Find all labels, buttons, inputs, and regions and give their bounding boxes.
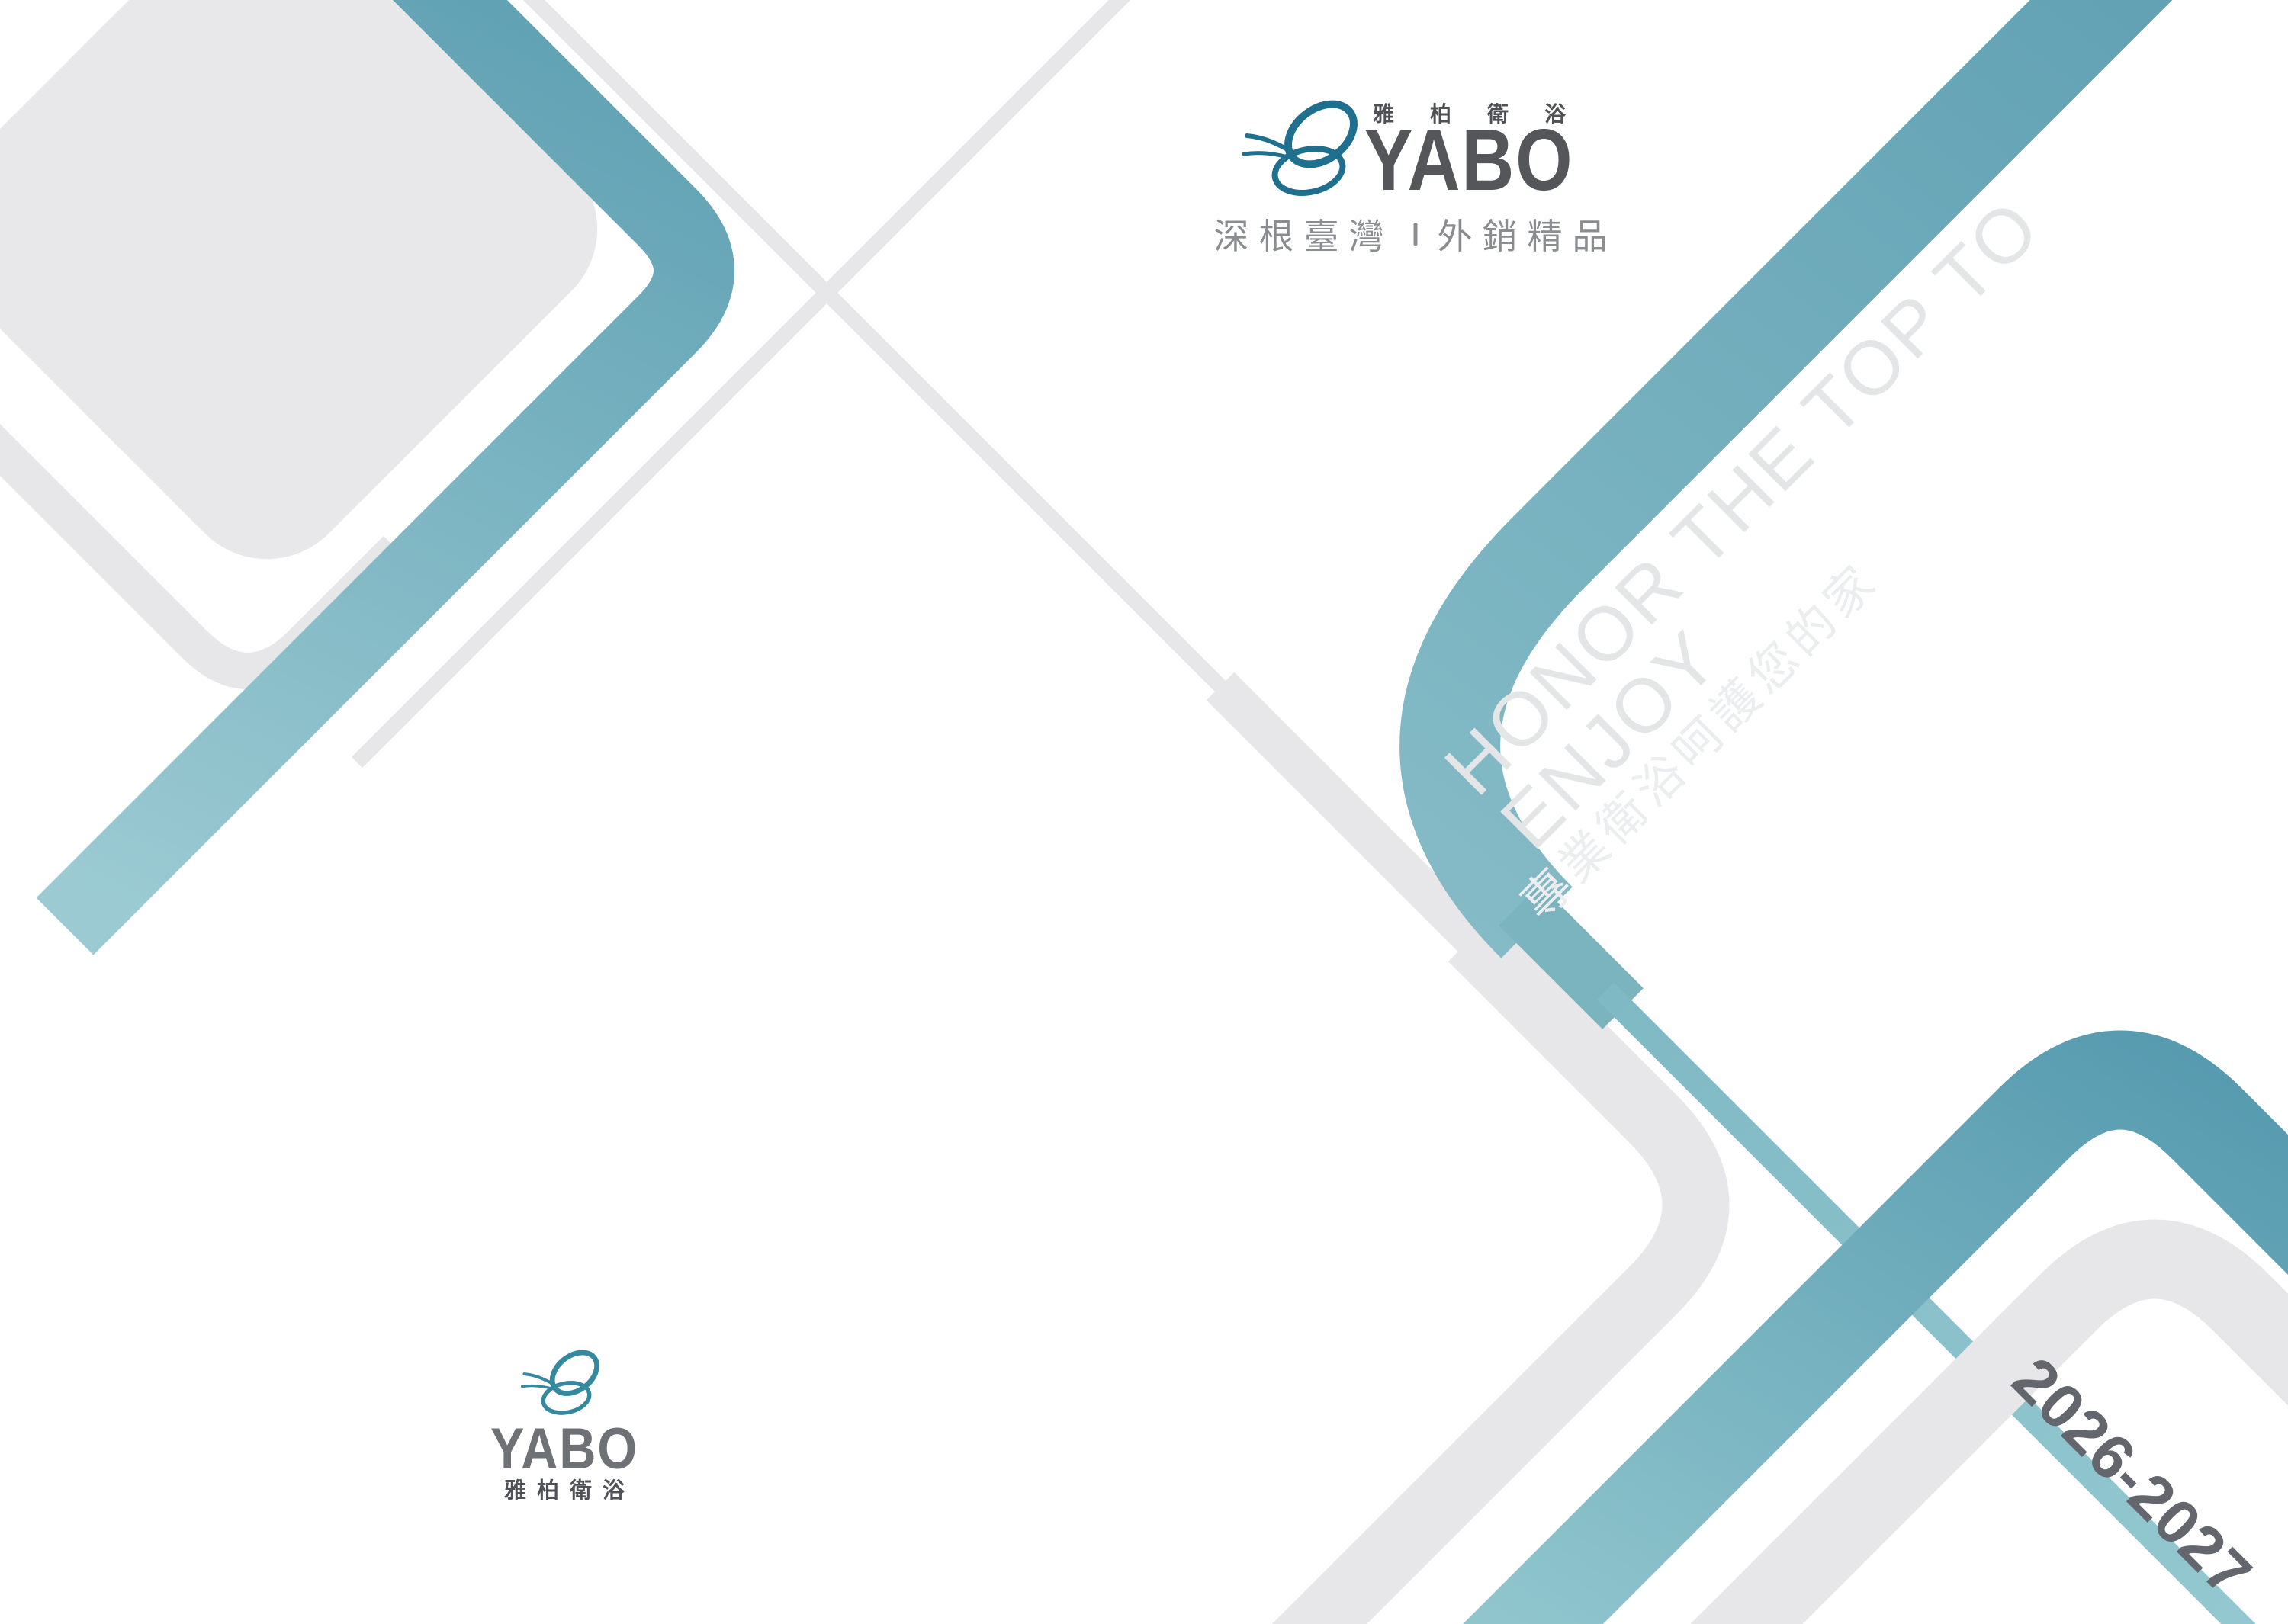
tagline-left: 深根臺灣 [1214, 209, 1394, 259]
brand-latin-name-top: YABO [1364, 117, 1574, 204]
tagline-right: 外銷精品 [1438, 209, 1618, 259]
catalog-cover-spread: 雅柏衛浴 YABO 深根臺灣 外銷精品 HONOR THE TOP TO ENJ… [0, 0, 2288, 1624]
brand-latin-name-bottom: YABO [490, 1420, 638, 1478]
tagline-separator-bar [1414, 223, 1418, 246]
brand-cjk-name-bottom: 雅柏衛浴 [493, 1481, 635, 1503]
butterfly-logo-icon-small [522, 1344, 605, 1417]
butterfly-logo-icon [1244, 91, 1365, 198]
brand-tagline: 深根臺灣 外銷精品 [1214, 209, 1618, 259]
